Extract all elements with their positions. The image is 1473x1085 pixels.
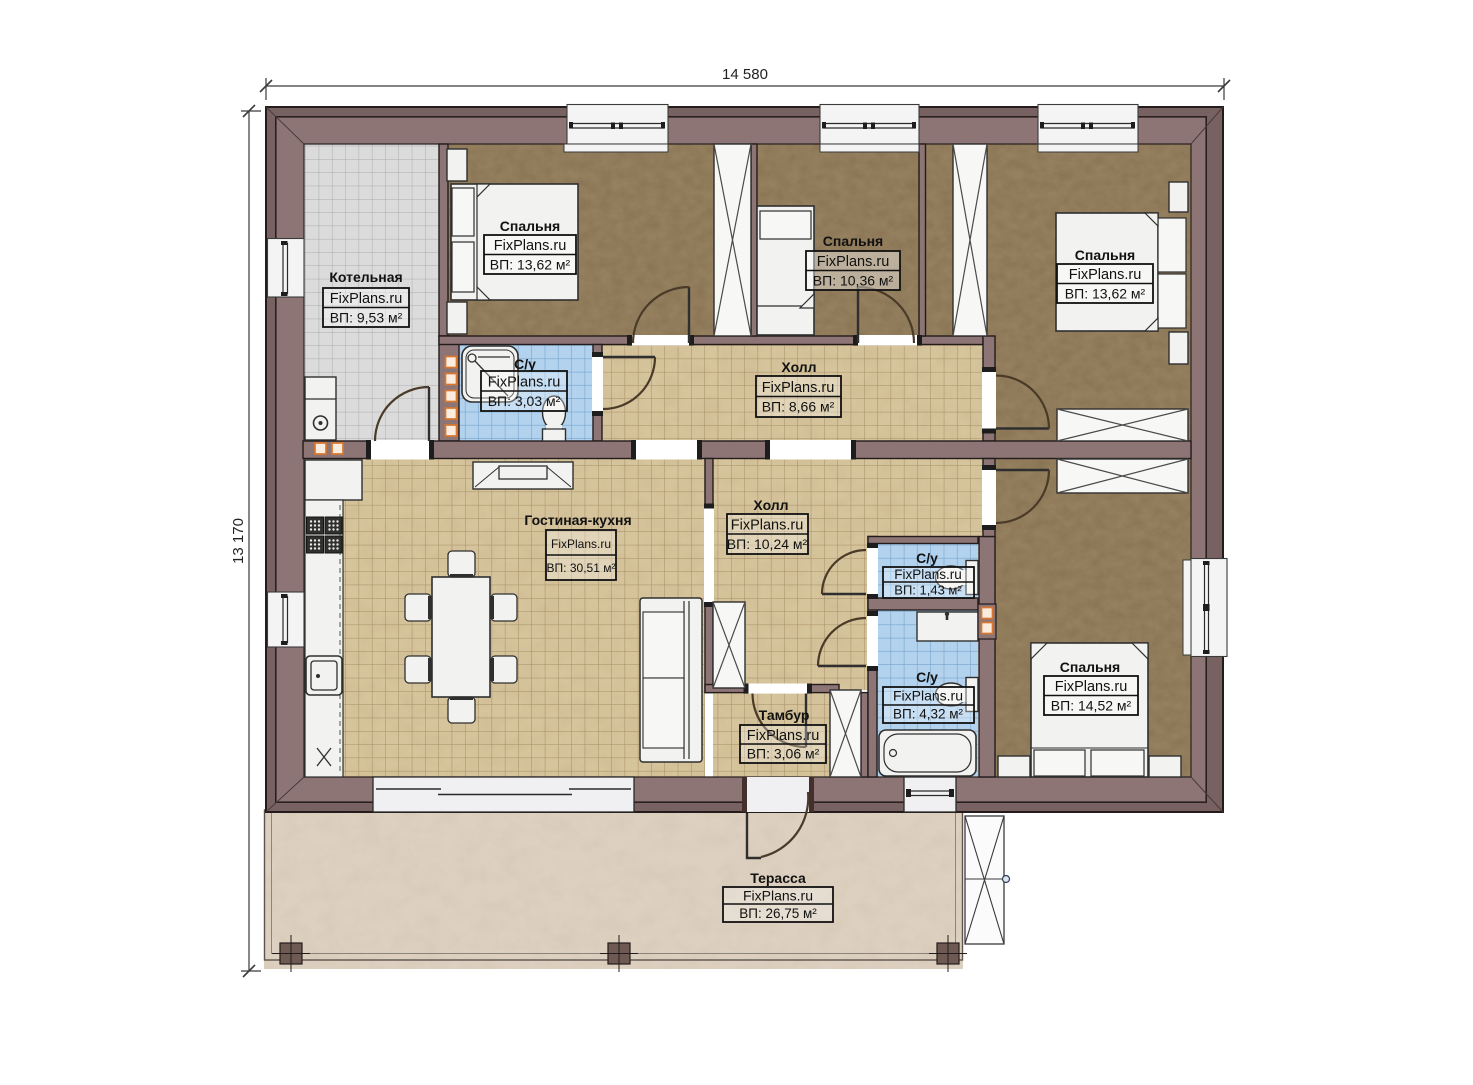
svg-text:ВП: 14,52 м²: ВП: 14,52 м²	[1051, 698, 1132, 714]
svg-text:Тамбур: Тамбур	[759, 707, 810, 723]
svg-text:FixPlans.ru: FixPlans.ru	[743, 888, 813, 904]
svg-text:FixPlans.ru: FixPlans.ru	[1055, 679, 1128, 695]
svg-text:С/у: С/у	[916, 550, 938, 566]
svg-text:ВП: 8,66 м²: ВП: 8,66 м²	[762, 399, 835, 415]
svg-text:Котельная: Котельная	[329, 269, 402, 285]
svg-text:Спальня: Спальня	[823, 233, 883, 249]
svg-text:FixPlans.ru: FixPlans.ru	[817, 254, 890, 270]
svg-text:ВП: 10,36 м²: ВП: 10,36 м²	[813, 273, 894, 289]
svg-text:ВП: 30,51 м²: ВП: 30,51 м²	[547, 561, 616, 575]
svg-text:FixPlans.ru: FixPlans.ru	[731, 518, 804, 534]
svg-text:FixPlans.ru: FixPlans.ru	[551, 537, 611, 551]
svg-text:FixPlans.ru: FixPlans.ru	[747, 728, 820, 744]
svg-text:ВП: 13,62 м²: ВП: 13,62 м²	[490, 257, 571, 273]
svg-text:14 580: 14 580	[722, 66, 768, 83]
svg-text:13 170: 13 170	[230, 518, 247, 564]
svg-text:Холл: Холл	[753, 497, 788, 513]
svg-text:С/у: С/у	[514, 356, 536, 372]
svg-text:С/у: С/у	[916, 669, 938, 685]
svg-text:Гостиная-кухня: Гостиная-кухня	[524, 512, 631, 528]
svg-text:ВП: 1,43 м²: ВП: 1,43 м²	[894, 583, 962, 598]
svg-text:FixPlans.ru: FixPlans.ru	[1069, 267, 1142, 283]
svg-text:FixPlans.ru: FixPlans.ru	[330, 291, 403, 307]
svg-text:ВП: 10,24 м²: ВП: 10,24 м²	[727, 536, 808, 552]
svg-text:Спальня: Спальня	[500, 218, 560, 234]
svg-text:Терасса: Терасса	[750, 870, 806, 886]
svg-text:FixPlans.ru: FixPlans.ru	[494, 238, 567, 254]
svg-text:FixPlans.ru: FixPlans.ru	[488, 375, 561, 391]
svg-text:ВП: 3,03 м²: ВП: 3,03 м²	[488, 393, 561, 409]
svg-text:ВП: 13,62 м²: ВП: 13,62 м²	[1065, 286, 1146, 302]
svg-text:FixPlans.ru: FixPlans.ru	[762, 380, 835, 396]
svg-text:ВП: 4,32 м²: ВП: 4,32 м²	[893, 707, 964, 722]
svg-text:ВП: 26,75 м²: ВП: 26,75 м²	[739, 906, 817, 921]
svg-text:Спальня: Спальня	[1075, 247, 1135, 263]
svg-text:FixPlans.ru: FixPlans.ru	[893, 688, 963, 704]
svg-text:ВП: 3,06 м²: ВП: 3,06 м²	[747, 746, 820, 762]
svg-text:Спальня: Спальня	[1060, 659, 1120, 675]
svg-text:Холл: Холл	[781, 359, 816, 375]
svg-text:FixPlans.ru: FixPlans.ru	[894, 567, 962, 582]
svg-text:ВП: 9,53 м²: ВП: 9,53 м²	[330, 310, 403, 326]
